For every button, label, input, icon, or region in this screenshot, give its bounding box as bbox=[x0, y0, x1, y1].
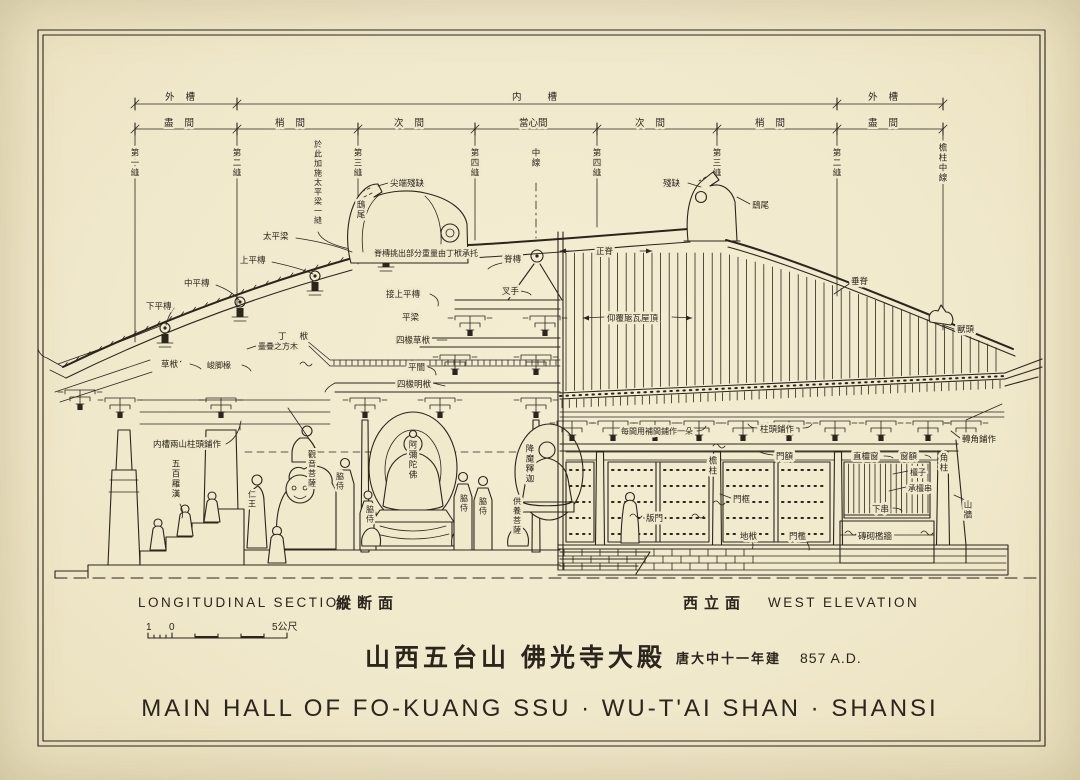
label-renwang: 仁王 bbox=[248, 489, 257, 509]
label-sakyamuni: 降魔釋迦 bbox=[525, 443, 535, 484]
label-plank-door: 版門 bbox=[646, 513, 663, 523]
label-taiping-beam: 太平梁 bbox=[263, 231, 289, 241]
label-ridge-purlin: 脊槫 bbox=[504, 254, 522, 264]
taiping-beam-note: 於此加施太平梁一縫 bbox=[314, 139, 323, 225]
grid-label: 第二縫 bbox=[832, 147, 842, 178]
label-column-top-brackets: 柱頭鋪作 bbox=[760, 424, 795, 434]
grid-label-centerline: 中線 bbox=[531, 147, 541, 168]
bay-label: 次間 bbox=[635, 117, 676, 129]
bay-label: 當心間 bbox=[519, 117, 548, 129]
architectural-drawing: 外槽 内槽 外槽 盡間 梢間 次間 當心間 次間 梢間 盡間 第一縫 第二縫 第… bbox=[0, 0, 1080, 780]
grid-label: 第四縫 bbox=[592, 147, 602, 178]
label-main-ridge: 正脊 bbox=[596, 246, 614, 256]
bay-label: 梢間 bbox=[275, 117, 316, 129]
rafter-ends bbox=[562, 380, 1000, 408]
beast-head-ornament bbox=[929, 305, 953, 325]
label-eave-column: 檐柱 bbox=[708, 455, 718, 476]
caption-section-cjk: 縱断面 bbox=[336, 594, 399, 612]
label-corner-brackets: 轉角鋪作 bbox=[962, 434, 997, 444]
label-attendant: 脇侍 bbox=[460, 494, 469, 513]
drawing-sheet: 外槽 内槽 外槽 盡間 梢間 次間 當心間 次間 梢間 盡間 第一縫 第二縫 第… bbox=[0, 0, 1080, 780]
longitudinal-section bbox=[38, 184, 690, 578]
dimension-header: 外槽 内槽 外槽 盡間 梢間 次間 當心間 次間 梢間 盡間 bbox=[131, 91, 947, 135]
label-pingliang: 平梁 bbox=[402, 312, 420, 322]
zone-label: 外槽 bbox=[868, 91, 909, 103]
scale-five-meters: 5公尺 bbox=[272, 621, 298, 633]
label-attendant: 脇侍 bbox=[366, 505, 375, 524]
label-arhats: 五百羅漢 bbox=[171, 459, 181, 499]
label-join-upper-purlin: 接上平槫 bbox=[386, 289, 421, 299]
label-junjiao-rafters: 峻脚椽 bbox=[207, 360, 231, 370]
label-corner-column: 角柱 bbox=[939, 452, 949, 473]
label-threshold: 門檻 bbox=[789, 531, 807, 541]
label-middle-purlin: 中平槫 bbox=[184, 278, 210, 288]
label-window-lintel: 窗額 bbox=[900, 451, 918, 461]
label-inner-cao-brackets: 内槽兩山柱頭鋪作 bbox=[153, 439, 222, 449]
label-door-jamb: 門框 bbox=[733, 494, 751, 504]
label-gable-wall: 山牆 bbox=[963, 499, 973, 520]
label-tip-damaged: 尖端殘缺 bbox=[390, 178, 425, 188]
label-section-chiwei: 鴟尾 bbox=[356, 199, 366, 220]
label-four-rafter-rough-beam: 四椽草栿 bbox=[396, 335, 431, 345]
scale-zero: 0 bbox=[169, 622, 175, 633]
grid-label: 第二縫 bbox=[232, 147, 242, 178]
grid-label: 第四縫 bbox=[470, 147, 480, 178]
bay-label: 盡間 bbox=[164, 117, 205, 129]
label-lattice-rail: 承欞串 bbox=[908, 483, 932, 493]
grid-label: 第三縫 bbox=[353, 147, 363, 178]
label-elevation-chiwei: 鴟尾 bbox=[752, 200, 770, 210]
zone-label: 内槽 bbox=[512, 91, 583, 103]
elevation-chiwei-ornament bbox=[684, 172, 740, 241]
title-block: 山西五台山 佛光寺大殿 唐大中十一年建 857 A.D. MAIN HALL O… bbox=[141, 643, 938, 722]
bay-label: 次間 bbox=[394, 117, 435, 129]
label-lower-rail: 下串 bbox=[872, 504, 889, 514]
title-cjk: 山西五台山 佛光寺大殿 bbox=[365, 643, 666, 672]
section-roof bbox=[38, 258, 352, 378]
label-lattice-window: 直欞窗 bbox=[853, 451, 879, 461]
title-en: MAIN HALL OF FO-KUANG SSU · WU-T'AI SHAN… bbox=[141, 695, 938, 722]
sheet-frame bbox=[38, 30, 1045, 746]
grid-label: 第一縫 bbox=[130, 147, 140, 178]
label-upper-purlin: 上平槫 bbox=[240, 255, 266, 265]
label-four-rafter-exposed-beam: 四椽明栿 bbox=[397, 379, 432, 389]
label-lower-purlin: 下平槫 bbox=[146, 301, 172, 311]
label-ridge-note: 脊槫挑出部分重量由丁栿承托 bbox=[374, 248, 478, 258]
label-offering-bodhisattva: 供養菩薩 bbox=[513, 496, 522, 535]
label-stacked-timbers: 壘疊之方木 bbox=[258, 341, 298, 351]
caption-elevation-cjk: 西立面 bbox=[683, 594, 746, 612]
zone-label: 外槽 bbox=[165, 91, 206, 103]
scale-one: 1 bbox=[146, 622, 152, 633]
label-beast-head: 獸頭 bbox=[957, 324, 975, 334]
label-attendant: 脇侍 bbox=[479, 497, 488, 516]
caption-elevation-en: WEST ELEVATION bbox=[768, 595, 919, 610]
label-damaged: 殘缺 bbox=[663, 178, 681, 188]
scale-bar: 1 0 5公尺 bbox=[146, 621, 298, 639]
caption-block: LONGITUDINAL SECTION 縱断面 西立面 WEST ELEVAT… bbox=[138, 594, 919, 612]
caption-section-en: LONGITUDINAL SECTION bbox=[138, 595, 351, 610]
label-intermediate-brackets: 每間用補間鋪作一朵 bbox=[621, 426, 693, 436]
label-chashou: 叉手 bbox=[502, 286, 520, 296]
label-brick-sill-wall: 磚砌檻牆 bbox=[858, 531, 893, 541]
grid-label-eave-column-centerline: 檐柱中線 bbox=[938, 142, 948, 183]
platform bbox=[558, 545, 1008, 575]
grid-lines: 第一縫 第二縫 第三縫 第四縫 中線 第四縫 第三縫 第二縫 檐柱中線 於此加施… bbox=[130, 135, 948, 342]
label-door-lintel: 門額 bbox=[776, 451, 794, 461]
label-lattice-bars: 欞子 bbox=[910, 467, 926, 477]
label-descending-ridge: 垂脊 bbox=[851, 276, 869, 286]
label-attendant: 脇侍 bbox=[336, 472, 345, 491]
label-guanyin: 觀音菩薩 bbox=[308, 449, 317, 488]
label-ding-fu: 丁栿 bbox=[278, 331, 321, 341]
label-rough-beam: 草栿 bbox=[161, 359, 179, 369]
bay-label: 盡間 bbox=[868, 117, 909, 129]
label-ground-sill: 地栿 bbox=[740, 531, 758, 541]
title-date-en: 857 A.D. bbox=[800, 650, 862, 666]
label-pingan-ceiling: 平闇 bbox=[408, 362, 425, 372]
label-tile-roof: 仰覆瓪瓦屋頂 bbox=[607, 313, 659, 323]
title-date-cjk: 唐大中十一年建 bbox=[676, 651, 781, 666]
label-amitabha: 阿彌陀佛 bbox=[408, 440, 418, 480]
bay-label: 梢間 bbox=[755, 117, 796, 129]
